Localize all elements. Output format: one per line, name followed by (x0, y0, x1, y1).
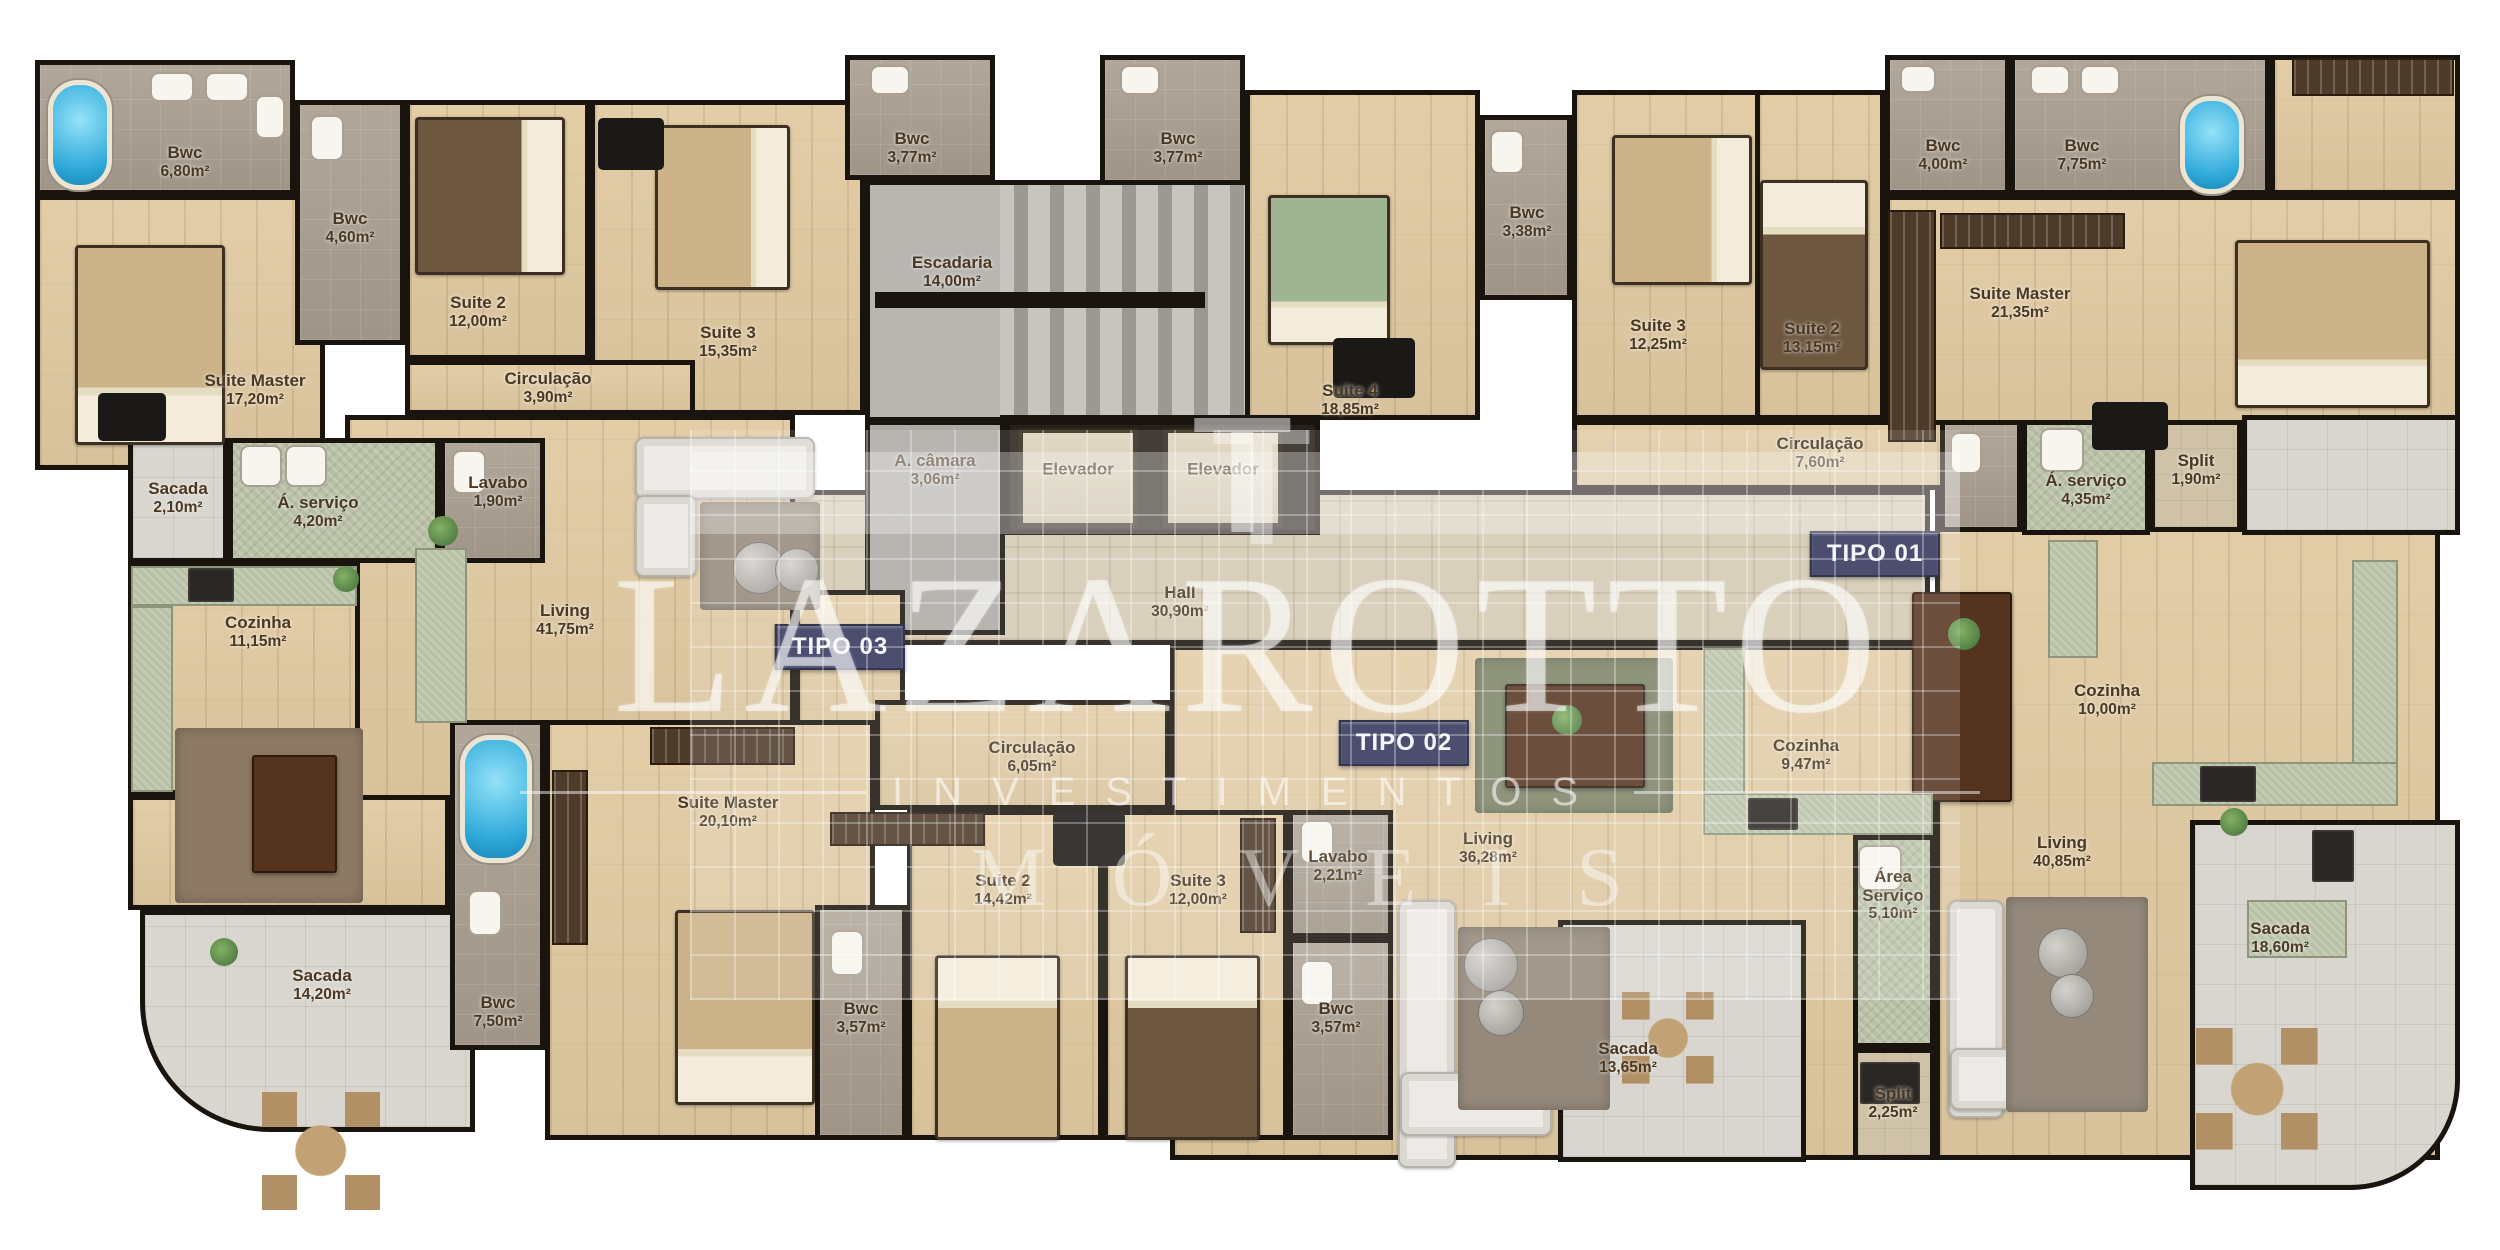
wardrobe-icon (2292, 58, 2454, 96)
room-t3-sacada-210 (128, 438, 228, 563)
plant-icon (333, 566, 359, 592)
room-elevador-2 (1163, 428, 1283, 528)
appl-icon (1748, 798, 1798, 830)
sofa-icon (635, 495, 697, 577)
wardrobe-icon (552, 770, 588, 945)
fixture-icon (310, 115, 344, 161)
plant-icon (1948, 618, 1980, 650)
wardrobe-icon (830, 812, 985, 846)
desk-icon (98, 393, 166, 441)
bed-icon (1125, 955, 1260, 1140)
fixture-icon (468, 890, 502, 936)
tipo-badge: TIPO 02 (1339, 720, 1469, 766)
fixture-icon (1300, 960, 1334, 1006)
patio-icon (2196, 1028, 2318, 1150)
circle-icon (2038, 928, 2088, 978)
counter-icon (131, 606, 173, 792)
counter-icon (415, 548, 467, 723)
bed-icon (655, 125, 790, 290)
bed-icon (415, 117, 565, 275)
room-t3-circulacao (405, 360, 695, 415)
patio-icon (1622, 992, 1714, 1084)
wardrobe-icon (1940, 213, 2125, 249)
fixture-icon (830, 930, 864, 976)
desk-icon (1053, 812, 1125, 866)
counter-icon (2048, 540, 2098, 658)
fixture-icon (452, 450, 486, 494)
counter-icon (2152, 762, 2398, 806)
fixture-icon (1300, 820, 1334, 864)
tipo-badge: TIPO 03 (775, 624, 905, 670)
fixture-icon (2030, 65, 2070, 95)
room-elevador-1 (1018, 428, 1138, 528)
fixture-icon (240, 445, 282, 487)
fixture-icon (150, 72, 194, 102)
desk-icon (1333, 338, 1415, 398)
sofa-icon (635, 437, 815, 499)
appl-icon (2200, 766, 2256, 802)
tub-icon (2180, 96, 2244, 194)
table-icon (1505, 684, 1645, 788)
fixture-icon (205, 72, 249, 102)
circle-icon (1478, 990, 1524, 1036)
table-icon (252, 755, 337, 873)
bed-icon (935, 955, 1060, 1140)
fixture-icon (2080, 65, 2120, 95)
counter-icon (2247, 900, 2347, 958)
bed-icon (1612, 135, 1752, 285)
tub-icon (48, 80, 112, 190)
circle-icon (1464, 938, 1518, 992)
fixture-icon (2040, 428, 2084, 472)
appl-icon (2312, 830, 2354, 882)
fixture-icon (1490, 130, 1524, 174)
desk-icon (598, 118, 664, 170)
fixture-icon (1950, 432, 1982, 474)
appl-icon (188, 568, 234, 602)
tipo-badge: TIPO 01 (1810, 531, 1940, 577)
room-t1-terraco (2242, 415, 2460, 535)
patio-icon (262, 1092, 380, 1210)
circle-icon (2050, 974, 2094, 1018)
counter-icon (1703, 793, 1933, 835)
wardrobe-icon (1888, 210, 1936, 442)
fixture-icon (1120, 65, 1160, 95)
plant-icon (210, 938, 238, 966)
wardrobe-icon (650, 727, 795, 765)
plant-icon (428, 516, 458, 546)
bed-icon (1760, 180, 1868, 370)
appl-icon (1860, 1062, 1920, 1104)
desk-icon (2092, 402, 2168, 450)
fixture-icon (870, 65, 910, 95)
fixture-icon (255, 95, 285, 139)
wardrobe-icon (1240, 818, 1276, 933)
fixture-icon (285, 445, 327, 487)
fixture-icon (1858, 845, 1902, 891)
fixture-icon (1900, 65, 1936, 93)
room-t2-circulacao (875, 700, 1170, 810)
bed-icon (1268, 195, 1390, 345)
bed-icon (675, 910, 815, 1105)
room-t3-bwc-377 (845, 55, 995, 180)
bed-icon (2235, 240, 2430, 408)
plant-icon (2220, 808, 2248, 836)
plant-icon (1552, 705, 1582, 735)
bar-icon (875, 292, 1205, 308)
tub-icon (460, 735, 532, 863)
circle-icon (775, 548, 819, 592)
floor-plan: Hall30,90m²Escadaria14,00m²A. câmara3,06… (0, 0, 2500, 1250)
counter-icon (131, 566, 357, 606)
